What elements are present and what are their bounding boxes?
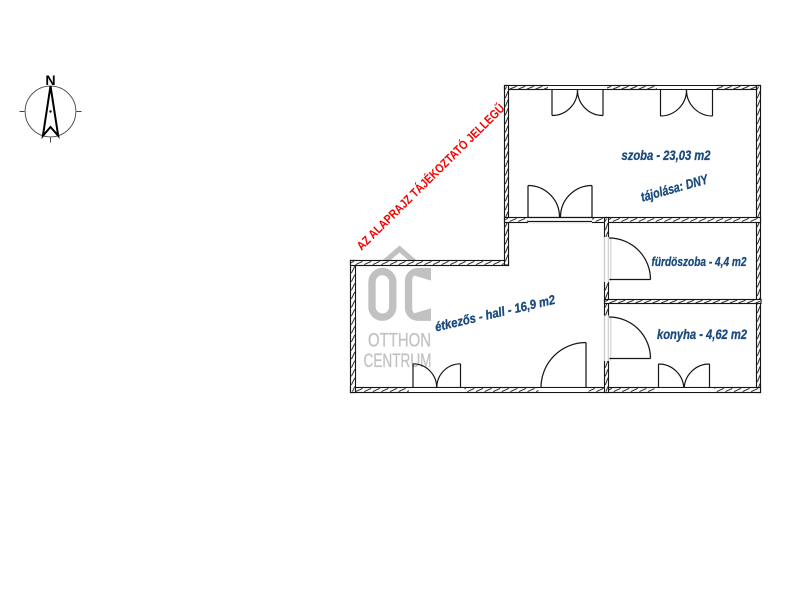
svg-text:OTTHON: OTTHON xyxy=(368,331,431,352)
svg-text:fürdöszoba - 4,4 m2: fürdöszoba - 4,4 m2 xyxy=(652,254,748,269)
svg-text:CENTRUM: CENTRUM xyxy=(364,351,432,372)
svg-text:szoba - 23,03 m2: szoba - 23,03 m2 xyxy=(622,148,711,163)
svg-text:N: N xyxy=(45,73,55,89)
svg-text:konyha - 4,62 m2: konyha - 4,62 m2 xyxy=(657,327,747,342)
